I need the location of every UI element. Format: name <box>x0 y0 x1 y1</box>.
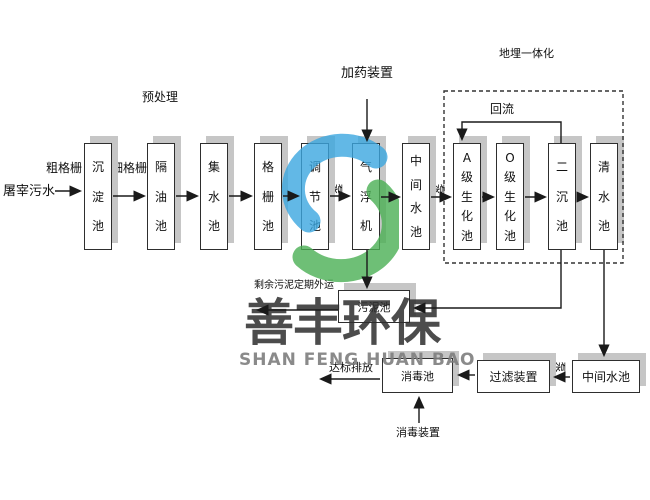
tank-intermediate-1: 中间水池 <box>402 143 430 250</box>
logo-blue-swirl <box>293 145 376 221</box>
box-face: 沉淀池 <box>84 143 112 250</box>
reflux-label: 回流 <box>490 102 514 116</box>
tank-secondary-sedimentation: 二沉池 <box>548 143 576 250</box>
disinfect-device-label: 消毒装置 <box>396 426 440 439</box>
tank-collection: 集水池 <box>200 143 228 250</box>
box-face: O级生化池 <box>496 143 524 250</box>
coarse-screen-label: 粗格栅 <box>46 161 82 175</box>
box-face: 隔油池 <box>147 143 175 250</box>
tank-sedimentation: 沉淀池 <box>84 143 112 250</box>
box-face: A级生化池 <box>453 143 481 250</box>
pretreatment-label: 预处理 <box>142 90 178 104</box>
logo-green-swirl <box>304 191 393 271</box>
watermark-pinyin: SHAN FENG HUAN BAO <box>239 350 475 370</box>
box-face: 二沉池 <box>548 143 576 250</box>
tank-screen: 格栅池 <box>254 143 282 250</box>
tank-intermediate-2: 中间水池 <box>572 360 640 393</box>
tank-clear-water: 清水池 <box>590 143 618 250</box>
tank-oil-separation: 隔油池 <box>147 143 175 250</box>
watermark-chinese: 善丰环保 <box>244 283 440 355</box>
box-face: 中间水池 <box>402 143 430 250</box>
box-face: 格栅池 <box>254 143 282 250</box>
box-face: 集水池 <box>200 143 228 250</box>
shanfeng-logo-watermark <box>281 131 399 283</box>
tank-o-biochemical: O级生化池 <box>496 143 524 250</box>
influent-label: 屠宰污水 <box>3 184 55 200</box>
box-face: 清水池 <box>590 143 618 250</box>
dosing-device-label: 加药装置 <box>341 66 393 82</box>
filter-device-box: 过滤装置 <box>477 360 550 393</box>
tank-a-biochemical: A级生化池 <box>453 143 481 250</box>
process-flow-diagram: 预处理 加药装置 地埋一体化 回流 屠宰污水 粗格栅 细格栅 泵 泵 泵 沉淀池… <box>0 0 650 500</box>
buried-integration-label: 地埋一体化 <box>499 47 554 60</box>
